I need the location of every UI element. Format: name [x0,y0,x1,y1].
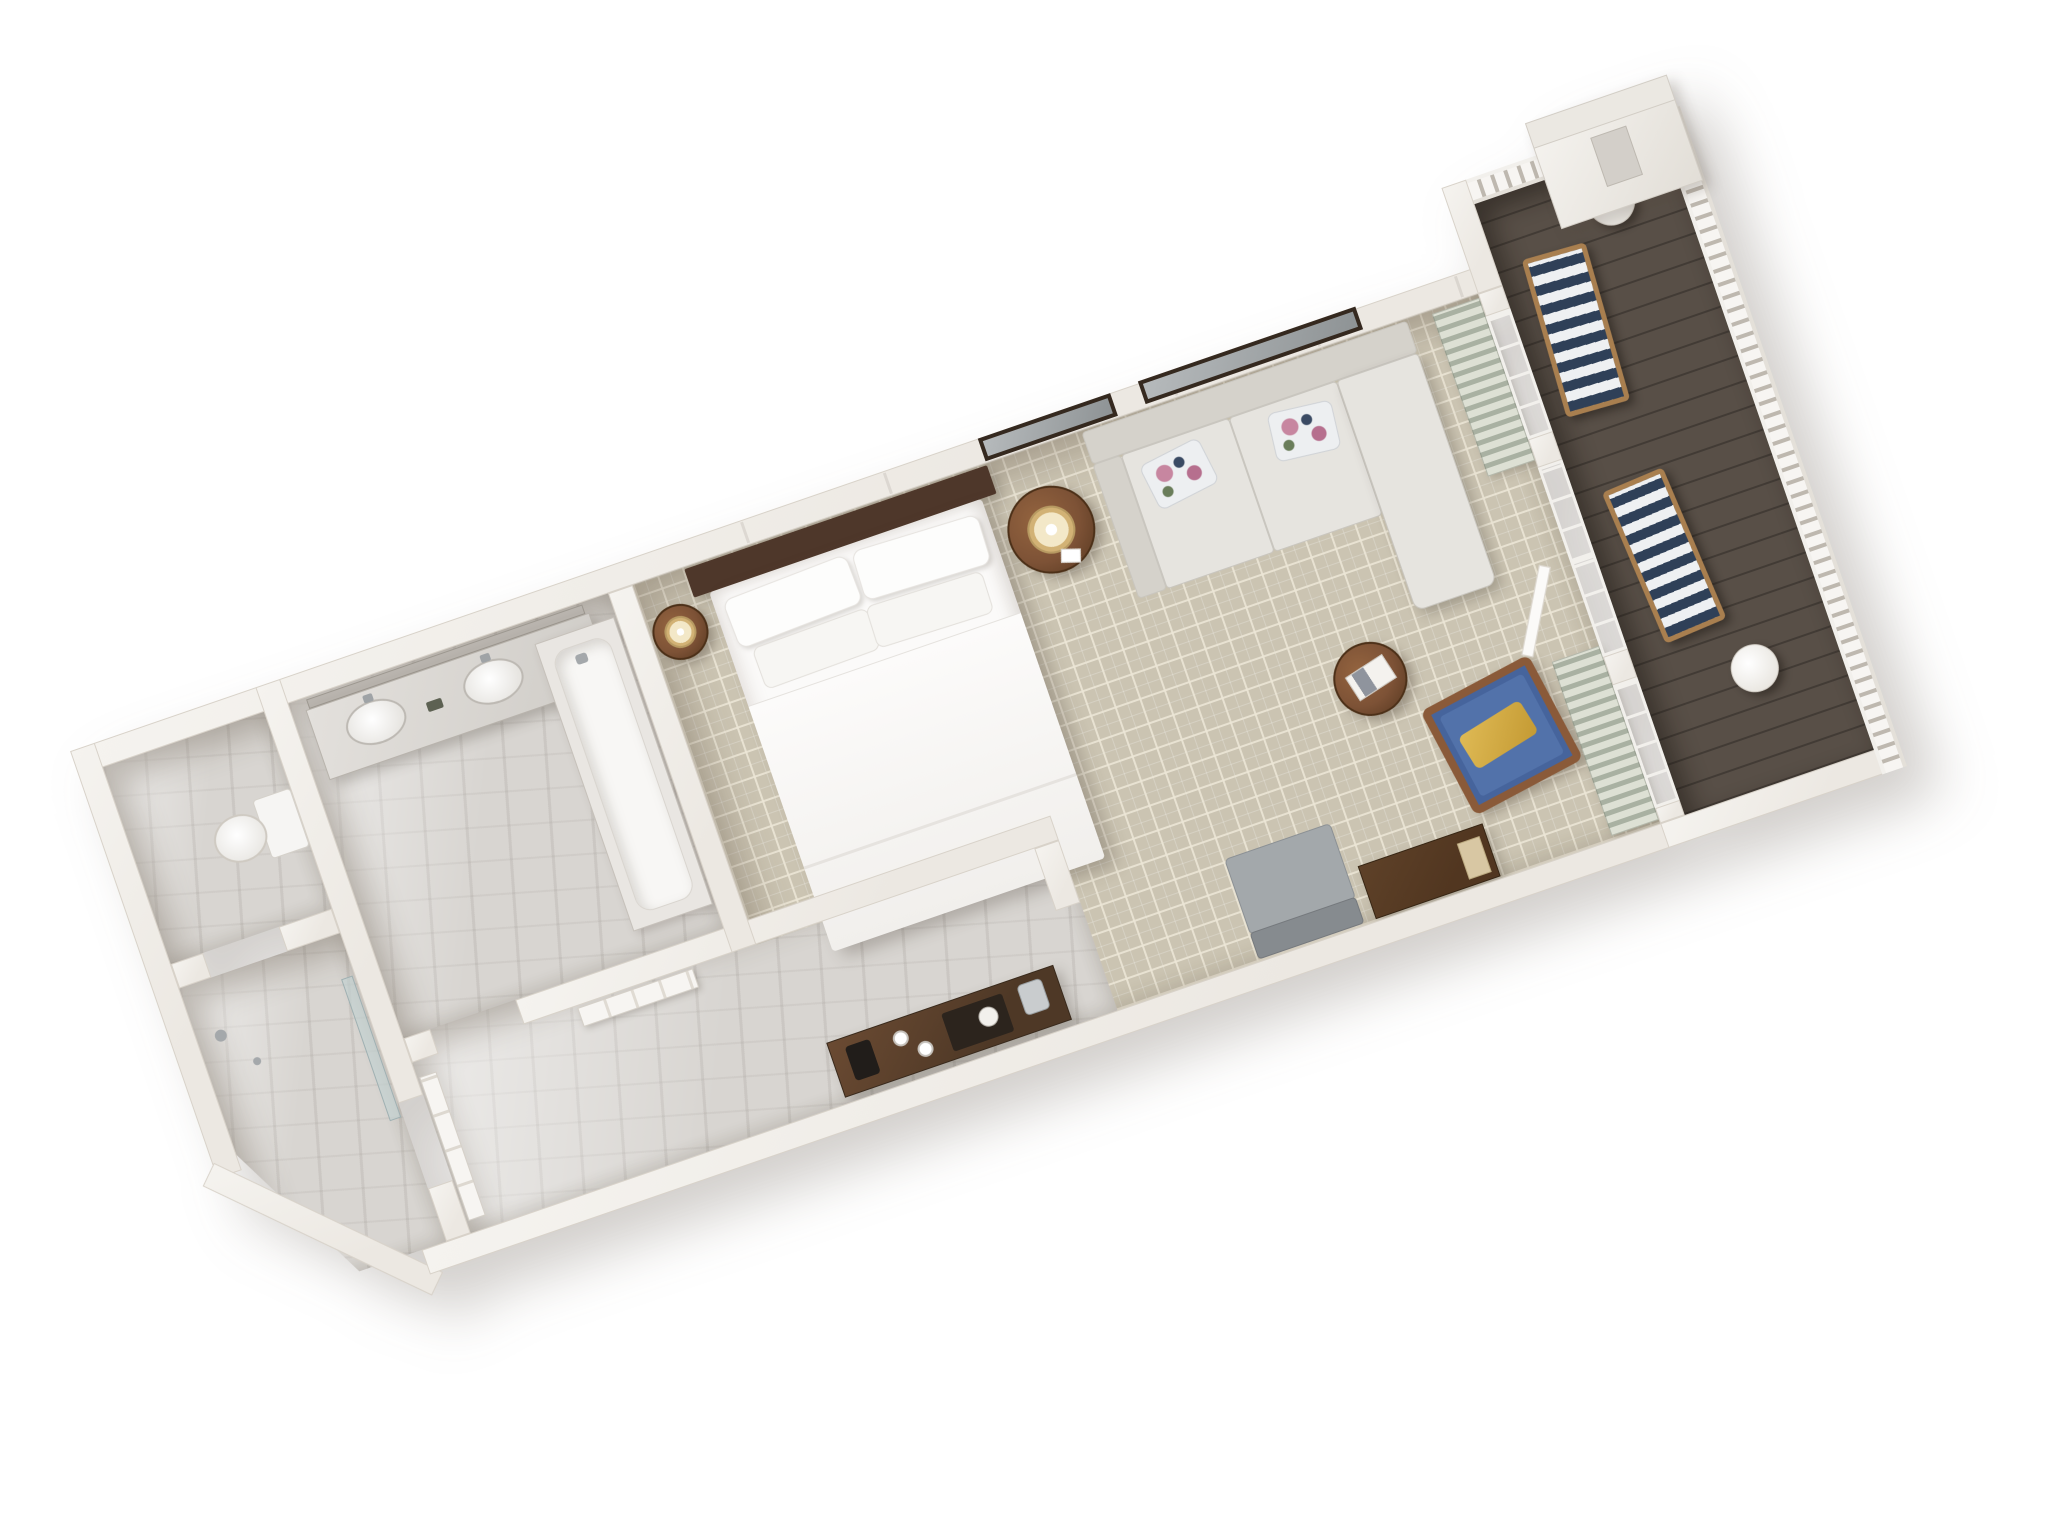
folded-towels [1457,836,1492,880]
room-service-card [1061,549,1081,563]
chimney-flue [1590,126,1643,188]
floor-plan-render [0,0,2048,1536]
plan-rotated-wrapper [31,65,1949,1376]
suite-plan [31,65,1949,1376]
